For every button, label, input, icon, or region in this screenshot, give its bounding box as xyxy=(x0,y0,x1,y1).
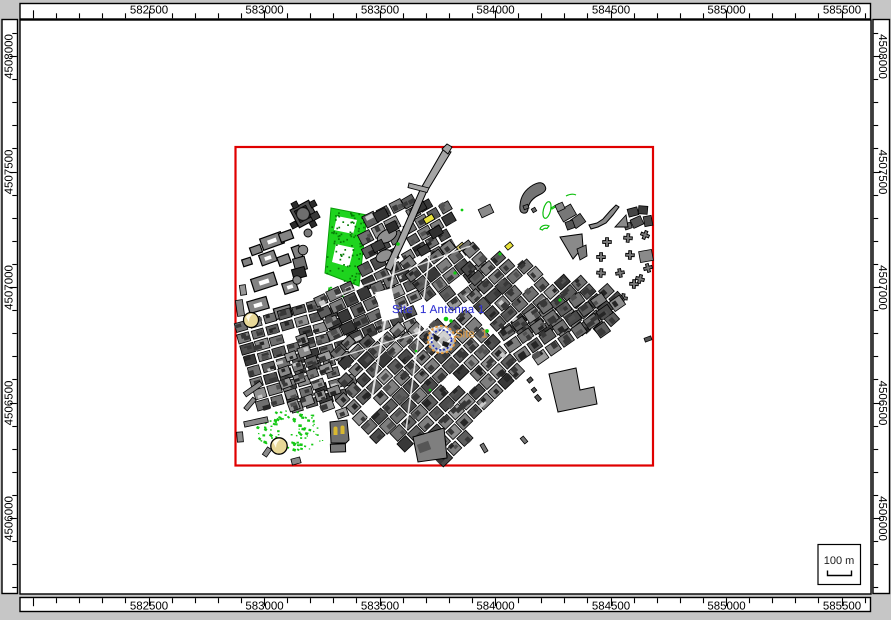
svg-text:583000: 583000 xyxy=(245,5,283,17)
svg-text:583500: 583500 xyxy=(361,600,399,612)
svg-text:4506000: 4506000 xyxy=(876,496,888,541)
svg-text:100 m: 100 m xyxy=(824,555,855,567)
svg-text:583000: 583000 xyxy=(245,600,283,612)
svg-text:4506500: 4506500 xyxy=(876,381,888,426)
svg-text:585500: 585500 xyxy=(823,600,861,612)
svg-text:Site 1: Site 1 xyxy=(455,329,488,341)
svg-text:584500: 584500 xyxy=(592,600,630,612)
svg-text:582500: 582500 xyxy=(130,600,168,612)
svg-text:4507000: 4507000 xyxy=(876,265,888,310)
svg-text:584000: 584000 xyxy=(476,5,514,17)
svg-text:Site 1 Antenna 1: Site 1 Antenna 1 xyxy=(392,304,485,316)
svg-text:4507000: 4507000 xyxy=(4,265,16,310)
svg-text:4507500: 4507500 xyxy=(876,150,888,195)
svg-text:585500: 585500 xyxy=(823,5,861,17)
svg-text:4508000: 4508000 xyxy=(4,34,16,79)
svg-text:4508000: 4508000 xyxy=(876,34,888,79)
svg-text:584000: 584000 xyxy=(476,600,514,612)
svg-text:584500: 584500 xyxy=(592,5,630,17)
svg-text:583500: 583500 xyxy=(361,5,399,17)
svg-text:4507500: 4507500 xyxy=(4,150,16,195)
svg-text:585000: 585000 xyxy=(707,600,745,612)
svg-text:582500: 582500 xyxy=(130,5,168,17)
svg-text:4506000: 4506000 xyxy=(4,496,16,541)
svg-text:585000: 585000 xyxy=(707,5,745,17)
svg-text:4506500: 4506500 xyxy=(4,381,16,426)
